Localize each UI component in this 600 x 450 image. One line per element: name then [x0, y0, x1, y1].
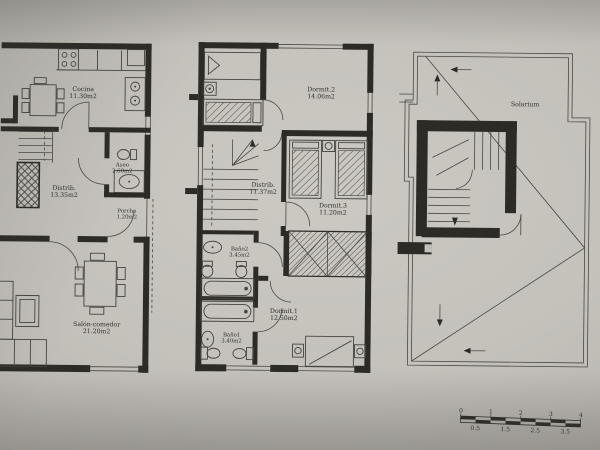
bed-icon: [335, 141, 368, 199]
scale-tick-label: 0.5: [470, 425, 480, 432]
dining-table: [75, 253, 126, 315]
room-label-aseo: Aseo 2.60m2: [112, 162, 133, 174]
sofa-set: [0, 281, 47, 366]
plot-boundary-dashed: [152, 199, 153, 313]
staircase-first: [203, 139, 259, 228]
bidet-icon: [233, 347, 254, 359]
scale-tick-label: 3.5: [560, 428, 570, 435]
room-label-bano2: Baño2 3.45m2: [229, 245, 250, 258]
scale-tick-label: 1: [489, 409, 493, 416]
room-label-porche: Porche 1.20m2: [117, 208, 138, 220]
washbasin-icon: [202, 331, 214, 347]
dormit1-bed: [292, 336, 365, 367]
kitchen-sink-icon: [125, 78, 145, 111]
stairwell-door-arc: [500, 214, 521, 235]
room-label-distrib-first: Distrib. 11.37m2: [249, 182, 277, 196]
svg-text:1.20m2: 1.20m2: [117, 214, 138, 220]
staircase-roof: [428, 131, 499, 226]
bed-icon: [203, 99, 263, 126]
plan-roof-solarium: Solarium: [396, 52, 590, 367]
stair-direction-arrow: [250, 140, 256, 147]
svg-text:11.30m2: 11.30m2: [69, 93, 97, 100]
built-in-wardrobe: [283, 231, 371, 277]
room-label-dormit3: Dormit.3 11.20m2: [319, 202, 347, 216]
room-label-bano1: Baño1 3.40m2: [221, 331, 242, 344]
kitchen-counter: [56, 49, 146, 111]
drainage-arrows: [431, 66, 488, 354]
bathtub-icon: [201, 301, 254, 322]
room-label-distrib-ground: Distrib. 13.35m2: [50, 185, 78, 199]
scale-tick-label: 2.5: [530, 427, 540, 434]
bidet-icon: [236, 261, 247, 277]
svg-text:21.20m2: 21.20m2: [83, 328, 111, 335]
nightstand-icon: [292, 344, 303, 357]
washbasin-icon: [203, 241, 221, 253]
svg-text:13.35m2: 13.35m2: [50, 192, 78, 199]
room-label-dormit1: Dormit.1 12.50m2: [270, 308, 298, 322]
nightstand-icon: [354, 345, 365, 358]
kitchen-table: [22, 77, 64, 115]
room-label-cocina: Cocina 11.30m2: [69, 86, 97, 100]
nightstand-icon: [323, 140, 335, 151]
dressing-room-furniture: [203, 52, 264, 126]
bathtub-icon: [201, 278, 254, 299]
svg-text:3.40m2: 3.40m2: [221, 338, 242, 344]
scale-tick-label: 0: [459, 407, 463, 414]
fridge-icon: [127, 50, 144, 66]
room-label-salon-comedor: Salón-comedor 21.20m2: [73, 321, 120, 335]
svg-text:11.20m2: 11.20m2: [319, 209, 347, 216]
plan-first-floor: Dormit.2 14.06m2 Distrib. 11.37m2 Dormit…: [183, 42, 373, 373]
svg-text:14.06m2: 14.06m2: [307, 93, 335, 100]
svg-text:2.60m2: 2.60m2: [112, 168, 133, 174]
stove-icon: [58, 49, 78, 70]
bed-icon: [204, 52, 260, 80]
dormit3-beds: [289, 140, 368, 199]
room-label-dormit2: Dormit.2 14.06m2: [307, 86, 335, 100]
svg-text:12.50m2: 12.50m2: [270, 315, 298, 322]
svg-text:11.37m2: 11.37m2: [249, 189, 277, 196]
scale-tick-label: 4: [579, 412, 583, 419]
toilet-icon: [117, 149, 136, 159]
floor-plan-sheet: Cocina 11.30m2 Distrib. 13.35m2 Aseo 2.6…: [0, 0, 600, 450]
staircase-ground: [17, 128, 53, 207]
scale-tick-label: 3: [549, 411, 553, 418]
svg-text:3.45m2: 3.45m2: [229, 252, 250, 258]
washer-icon: [203, 82, 216, 95]
roof-slope-lines: [411, 56, 586, 363]
plan-ground-floor: Cocina 11.30m2 Distrib. 13.35m2 Aseo 2.6…: [0, 42, 155, 373]
room-label-solarium: Solarium: [511, 101, 540, 108]
toilet-icon: [202, 261, 213, 277]
toilet-icon: [200, 347, 220, 359]
scale-bar: 0 1 2 3 4 0.5 1.5 2.5 3.5: [458, 407, 583, 436]
bed-icon: [289, 140, 322, 198]
scale-tick-label: 2: [519, 410, 523, 417]
scale-tick-label: 1.5: [500, 426, 510, 433]
bano1-fixtures: [200, 301, 254, 360]
